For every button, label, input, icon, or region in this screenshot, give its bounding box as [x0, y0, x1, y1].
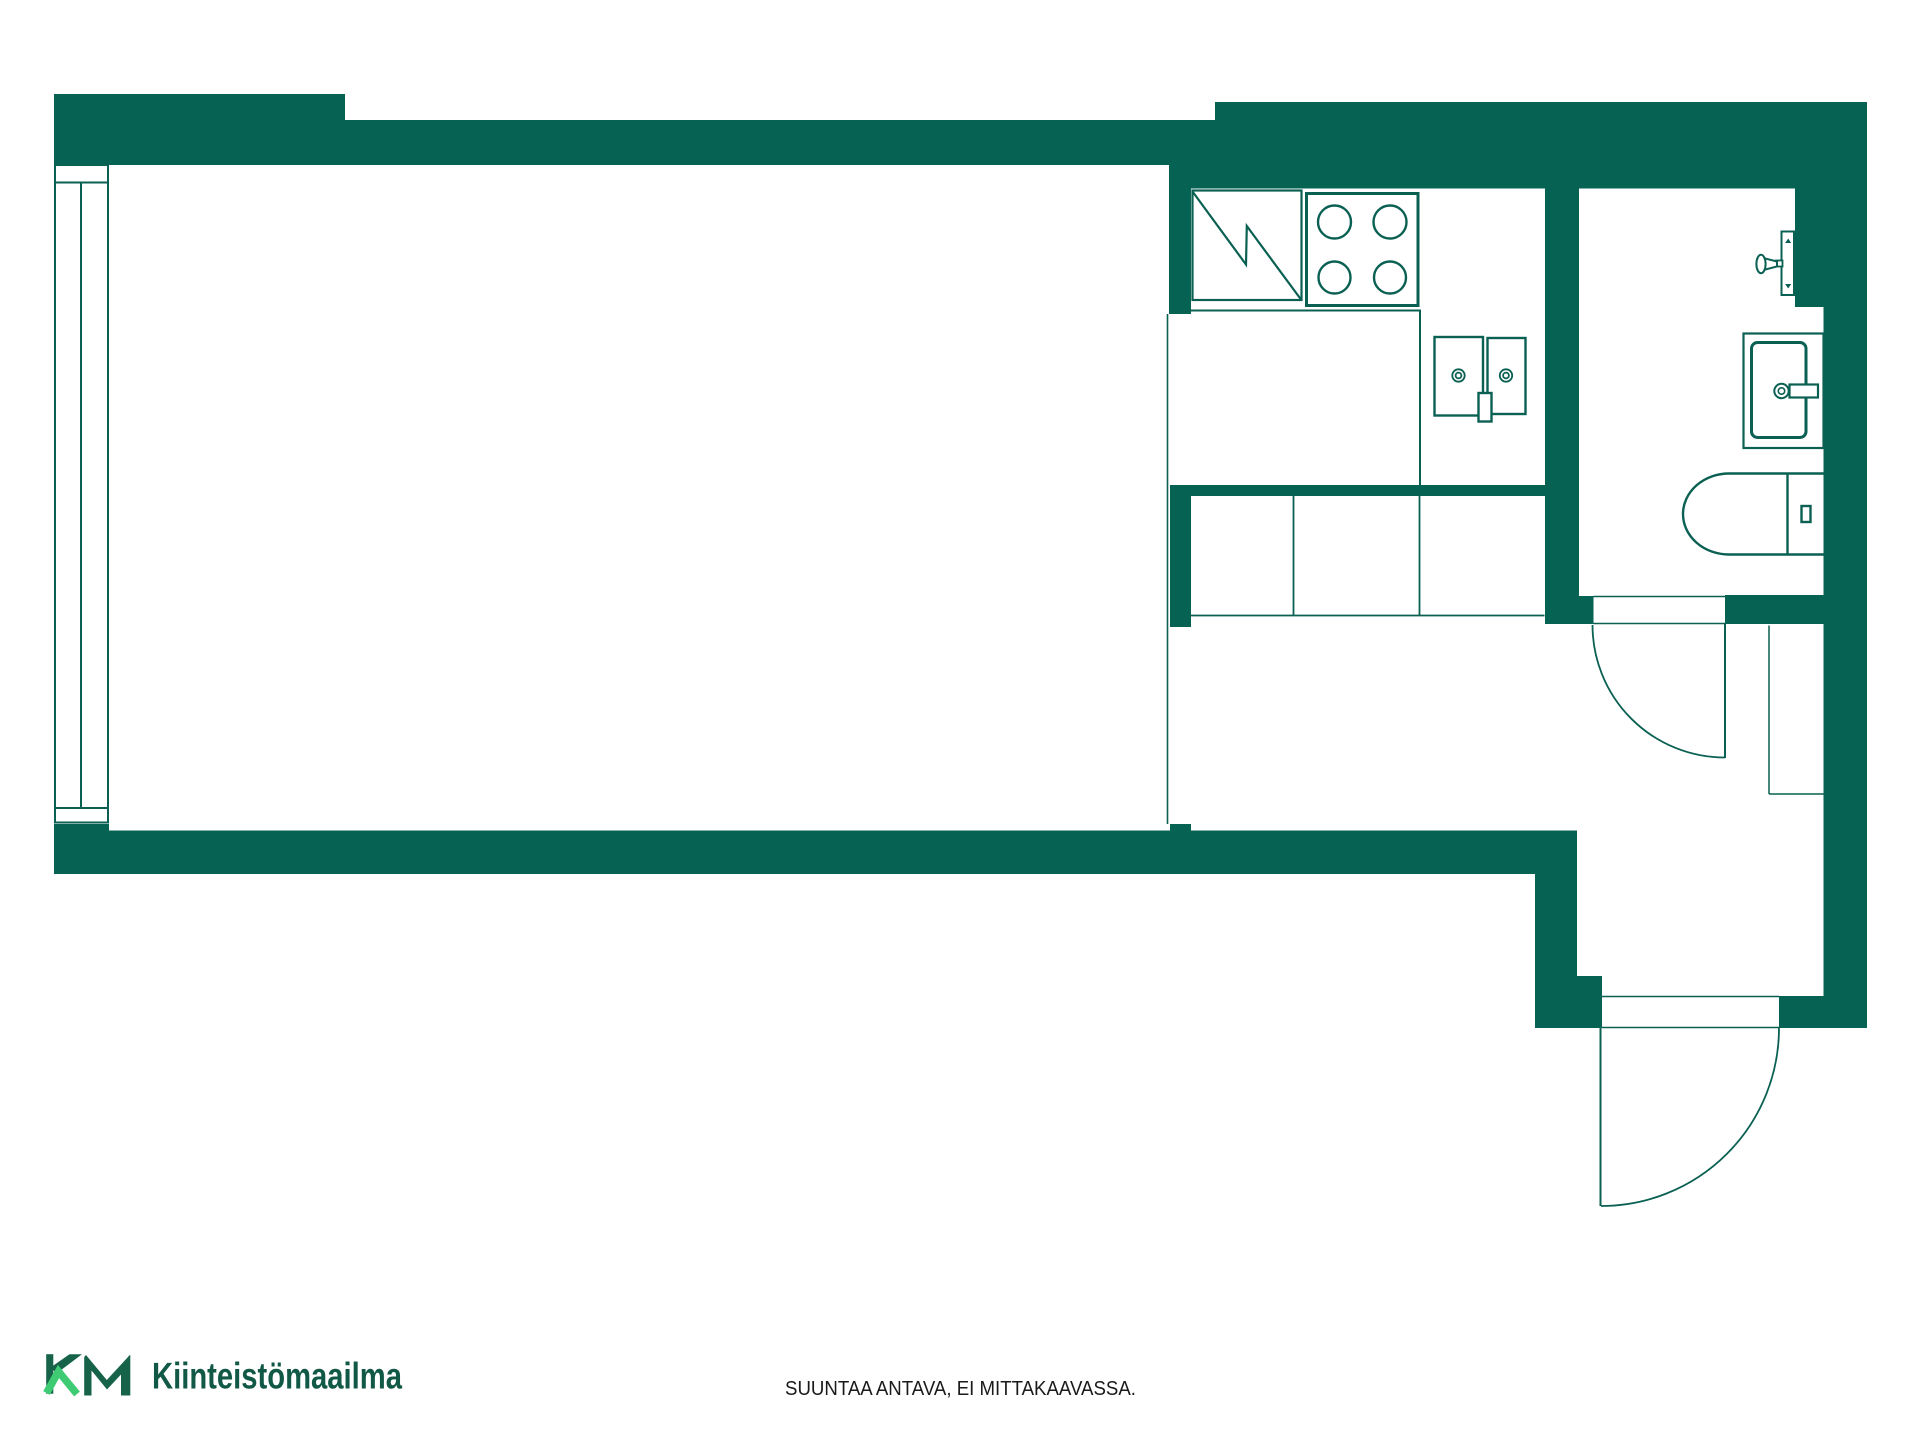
svg-text:Kiinteistömaailma: Kiinteistömaailma [152, 1356, 402, 1397]
svg-text:SUUNTAA ANTAVA, EI MITTAKAAVAS: SUUNTAA ANTAVA, EI MITTAKAAVASSA. [785, 1377, 1136, 1400]
